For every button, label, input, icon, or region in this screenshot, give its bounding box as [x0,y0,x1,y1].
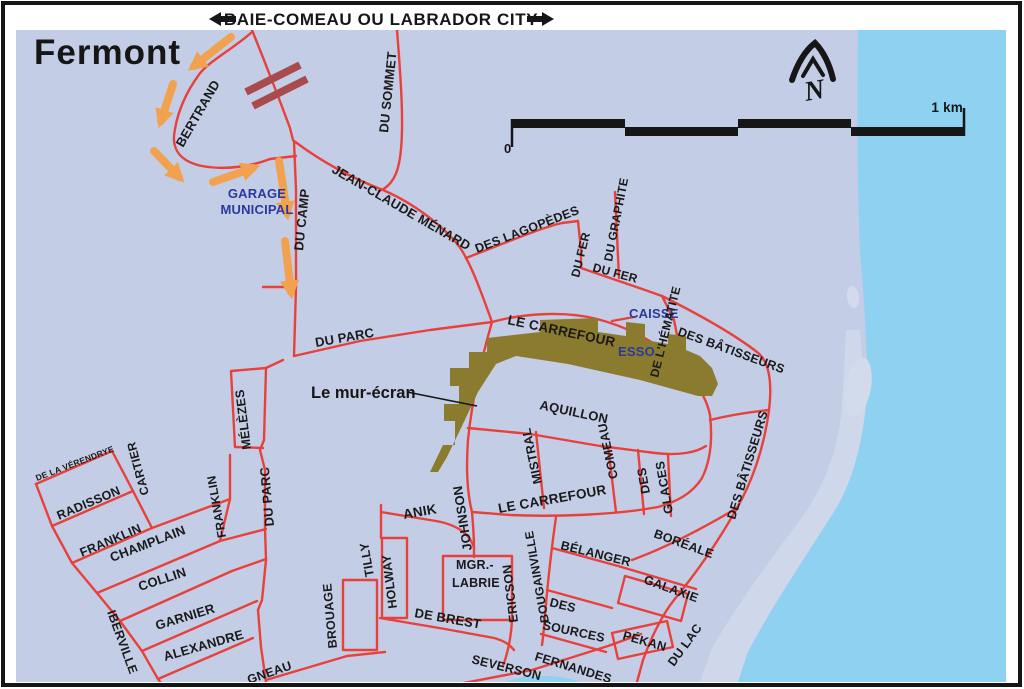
direction-banner: BAIE-COMEAU OU LABRADOR CITY [209,10,554,29]
street-label-mgr-labrie-2: LABRIE [452,576,500,590]
scale-zero-label: 0 [504,141,511,156]
fermont-map: BAIE-COMEAU OU LABRADOR CITY [0,0,1024,689]
scale-km-label: 1 km [931,100,963,115]
poi-label-garage-line1: GARAGE [228,186,286,201]
poi-label-garage-line2: MUNICIPAL [220,202,293,217]
banner-direction-label: BAIE-COMEAU OU LABRADOR CITY [224,10,538,29]
poi-label-esso: ESSO [618,344,655,359]
mur-ecran-label: Le mur-écran [311,384,416,402]
street-label-mgr-labrie-1: MGR.- [456,558,494,572]
map-title: Fermont [34,33,181,72]
